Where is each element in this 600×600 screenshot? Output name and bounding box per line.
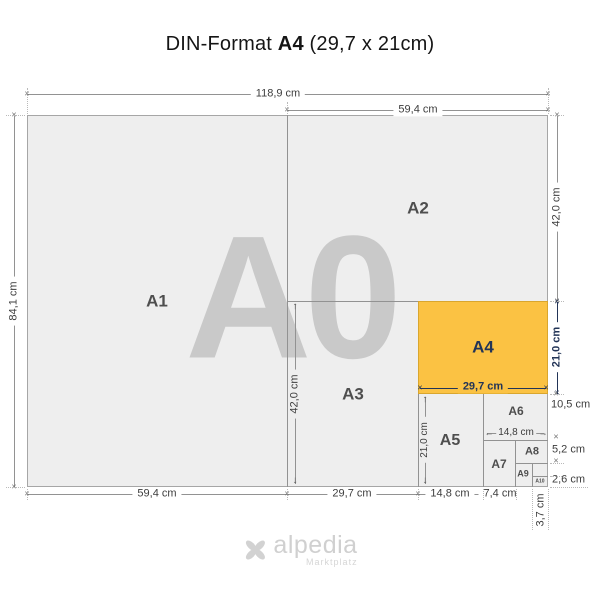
arrow-down-icon: ↓ bbox=[293, 476, 298, 486]
divider-a10 bbox=[532, 476, 548, 477]
brand-footer: alpedia Marktplatz bbox=[242, 533, 357, 567]
brand-name: alpedia bbox=[273, 533, 357, 558]
extension-line bbox=[27, 489, 28, 500]
arrow-down-icon: ↓ bbox=[423, 476, 428, 486]
dim-label-total-width: 118,9 cm bbox=[251, 87, 305, 100]
extension-line bbox=[550, 394, 564, 395]
title-prefix: DIN-Format bbox=[166, 33, 272, 55]
format-label-a1: A1 bbox=[146, 293, 168, 310]
dim-label-a3-width: 29,7 cm bbox=[327, 487, 376, 500]
extension-line bbox=[418, 489, 419, 500]
extension-line bbox=[550, 487, 588, 488]
dim-label-total-height: 84,1 cm bbox=[7, 276, 20, 325]
alpedia-logo-icon bbox=[242, 537, 268, 563]
format-label-a2: A2 bbox=[407, 200, 429, 217]
format-label-a8: A8 bbox=[525, 447, 539, 458]
extension-line bbox=[550, 115, 564, 116]
dim-label-a3-height: 42,0 cm bbox=[288, 369, 301, 418]
page-title: DIN-Format A4 (29,7 x 21cm) bbox=[0, 33, 600, 56]
extension-line bbox=[6, 115, 25, 116]
format-label-a3: A3 bbox=[342, 386, 364, 403]
arrow-up-icon: ↑ bbox=[293, 302, 298, 312]
format-label-a5: A5 bbox=[440, 433, 460, 449]
arrow-left-icon: ← bbox=[485, 429, 494, 438]
dim-label-a2-height: 42,0 cm bbox=[550, 182, 563, 231]
extension-line bbox=[550, 476, 564, 477]
dim-label-a5-height: 21,0 cm bbox=[419, 417, 431, 463]
format-label-a9: A9 bbox=[517, 470, 529, 479]
dim-label-half-width: 59,4 cm bbox=[393, 103, 442, 116]
extension-line bbox=[6, 487, 25, 488]
title-size: (29,7 x 21cm) bbox=[310, 33, 435, 55]
extension-line bbox=[287, 489, 288, 500]
extension-line bbox=[516, 489, 517, 500]
extension-line bbox=[548, 489, 549, 530]
dim-end-marker: × bbox=[553, 433, 558, 442]
dim-label-a9-width: 3,7 cm bbox=[534, 488, 547, 531]
dim-end-marker: × bbox=[554, 298, 559, 307]
dim-label-a4-width: 29,7 cm bbox=[458, 380, 508, 393]
dim-end-marker: × bbox=[553, 457, 558, 466]
extension-line bbox=[550, 463, 564, 464]
extension-line bbox=[287, 102, 288, 114]
extension-line bbox=[548, 88, 549, 114]
format-label-a6: A6 bbox=[508, 405, 523, 417]
extension-line bbox=[483, 489, 484, 500]
din-format-infographic: DIN-Format A4 (29,7 x 21cm) A0 A1 A2 A3 … bbox=[0, 0, 600, 600]
watermark-a0: A0 bbox=[185, 211, 395, 386]
dim-label-a4-height: 21,0 cm bbox=[550, 322, 563, 372]
arrow-up-icon: ↑ bbox=[423, 395, 428, 405]
arrow-right-icon: → bbox=[539, 429, 548, 438]
extension-line bbox=[27, 88, 28, 114]
format-label-a10: A10 bbox=[535, 480, 544, 485]
dim-end-marker: × bbox=[543, 384, 548, 393]
divider-a9 bbox=[532, 463, 533, 487]
extension-line bbox=[532, 489, 533, 530]
format-label-a7: A7 bbox=[491, 458, 506, 470]
dim-label-a5-width: 14,8 cm bbox=[425, 487, 474, 500]
title-format: A4 bbox=[278, 33, 304, 55]
format-label-a4: A4 bbox=[472, 339, 494, 356]
dim-label-a6-width: 14,8 cm bbox=[496, 427, 536, 439]
dim-label-a6-height: 10,5 cm bbox=[551, 398, 590, 411]
dim-label-a1-width: 59,4 cm bbox=[132, 487, 181, 500]
extension-line bbox=[550, 301, 564, 302]
dim-end-marker: × bbox=[417, 384, 422, 393]
